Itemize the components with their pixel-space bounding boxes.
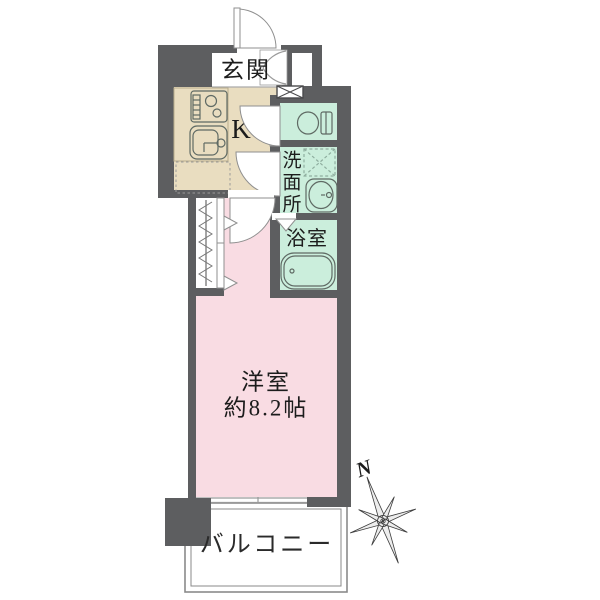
wall bbox=[337, 95, 351, 507]
room-doorway bbox=[228, 190, 274, 198]
window-to-balcony bbox=[196, 497, 307, 503]
svg-text:洗: 洗 bbox=[282, 150, 301, 172]
wall bbox=[188, 190, 196, 507]
svg-text:面: 面 bbox=[282, 173, 301, 194]
wall bbox=[270, 290, 351, 298]
svg-text:所: 所 bbox=[282, 194, 301, 216]
bathroom-label: 浴室 bbox=[286, 227, 328, 250]
wall bbox=[158, 87, 174, 198]
washroom-label: 洗 面 所 bbox=[282, 150, 301, 216]
entrance-label: 玄関 bbox=[221, 58, 271, 83]
wall bbox=[158, 45, 237, 53]
balcony-label: バルコニー bbox=[200, 532, 335, 558]
floor-plan-page: 玄関 K bbox=[0, 0, 600, 600]
wall bbox=[188, 288, 224, 296]
entrance-storage bbox=[292, 50, 312, 85]
main-room-label: 洋室 bbox=[241, 370, 291, 395]
floor-plan: 玄関 K bbox=[0, 0, 600, 600]
entrance-door-panel bbox=[234, 8, 240, 48]
entrance-door-arc bbox=[237, 9, 276, 48]
pipe-space-box bbox=[277, 86, 303, 98]
wall bbox=[307, 497, 351, 507]
compass-north-label: N bbox=[352, 454, 376, 482]
main-room-size-label: 約8.2帖 bbox=[224, 396, 309, 421]
